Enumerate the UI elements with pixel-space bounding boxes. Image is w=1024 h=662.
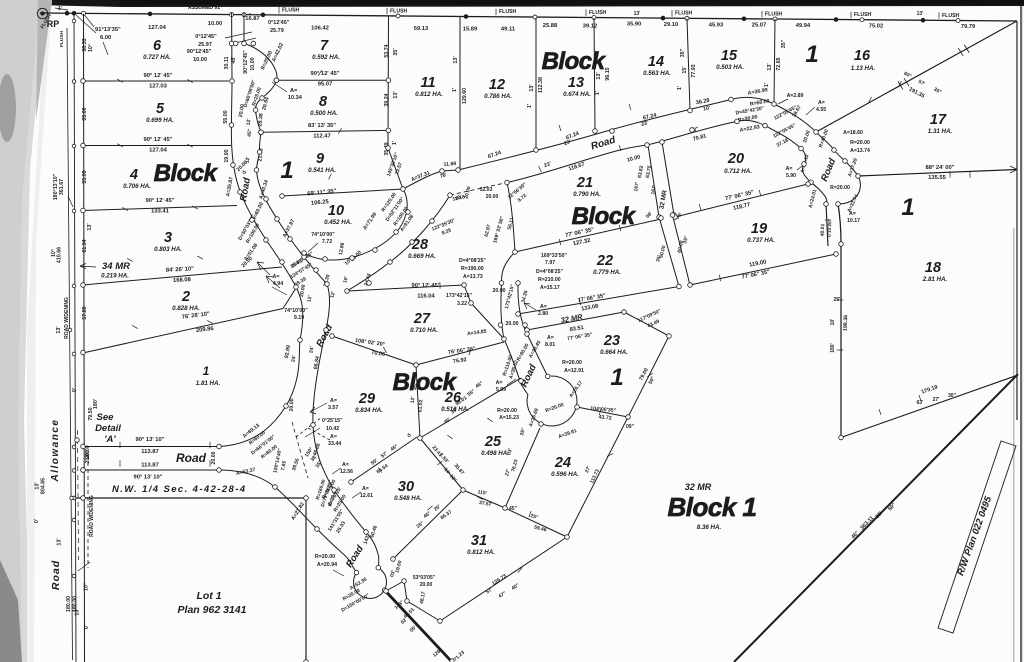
svg-text:24': 24': [290, 355, 297, 363]
svg-text:45": 45": [413, 381, 420, 390]
svg-text:A=15.23: A=15.23: [499, 415, 519, 421]
svg-text:10': 10': [830, 319, 836, 326]
svg-text:10.00: 10.00: [193, 57, 207, 63]
svg-text:77.93: 77.93: [691, 64, 697, 77]
svg-text:R=20.00: R=20.00: [830, 185, 850, 191]
svg-text:20.00: 20.00: [506, 321, 519, 327]
svg-text:72.65: 72.65: [776, 57, 782, 70]
svg-text:R=20.00: R=20.00: [315, 554, 335, 560]
svg-text:1.81 HA.: 1.81 HA.: [196, 380, 221, 387]
svg-text:A=15.17: A=15.17: [540, 285, 560, 291]
svg-text:90°12'45": 90°12'45": [187, 49, 212, 55]
svg-text:96.15: 96.15: [605, 67, 611, 80]
svg-text:15.89: 15.89: [463, 26, 478, 32]
svg-text:127.03: 127.03: [149, 84, 168, 90]
svg-text:A=20.94: A=20.94: [317, 562, 337, 568]
svg-text:3.22: 3.22: [457, 301, 467, 307]
svg-text:168.08: 168.08: [173, 277, 192, 284]
svg-text:0°25'15": 0°25'15": [322, 418, 343, 424]
svg-text:33.44: 33.44: [328, 441, 341, 447]
svg-text:9.19: 9.19: [294, 315, 304, 321]
svg-text:0.452 HA.: 0.452 HA.: [324, 219, 352, 226]
svg-text:20.00: 20.00: [211, 451, 217, 464]
svg-text:A=: A=: [496, 380, 503, 386]
svg-text:16: 16: [854, 48, 871, 64]
svg-text:Road: Road: [50, 560, 62, 590]
svg-text:Allowance: Allowance: [50, 419, 61, 483]
svg-text:0.699 HA.: 0.699 HA.: [146, 117, 174, 124]
svg-text:180': 180': [93, 399, 99, 409]
svg-text:Detail: Detail: [95, 423, 121, 434]
svg-text:Block 1: Block 1: [668, 492, 757, 522]
svg-text:A=13.74: A=13.74: [850, 148, 870, 154]
svg-text:20.00: 20.00: [486, 194, 499, 200]
svg-text:6.00: 6.00: [100, 35, 111, 41]
svg-text:2.81 HA.: 2.81 HA.: [922, 276, 948, 283]
svg-text:43.72: 43.72: [598, 414, 612, 421]
svg-text:FLUSH: FLUSH: [675, 11, 693, 17]
svg-text:0': 0': [72, 388, 78, 392]
svg-text:19: 19: [751, 221, 767, 237]
svg-text:10: 10: [328, 203, 344, 219]
svg-text:16.87: 16.87: [245, 16, 260, 22]
svg-text:ROAD WIDENING: ROAD WIDENING: [89, 495, 95, 537]
svg-text:R=20.00: R=20.00: [497, 408, 517, 414]
svg-text:FLUSH: FLUSH: [854, 12, 872, 18]
svg-text:40.01: 40.01: [820, 223, 826, 236]
svg-text:8: 8: [319, 94, 328, 110]
svg-text:5.90: 5.90: [786, 173, 796, 179]
svg-text:10°: 10°: [84, 583, 90, 591]
svg-text:R=190.00: R=190.00: [461, 266, 484, 272]
svg-text:49.11: 49.11: [501, 27, 516, 33]
svg-text:ASSUMED 91°: ASSUMED 91°: [188, 5, 222, 11]
svg-text:D=4°08'25": D=4°08'25": [536, 269, 564, 275]
svg-text:1.31 HA.: 1.31 HA.: [928, 128, 953, 135]
svg-text:FLUSH: FLUSH: [765, 11, 783, 17]
svg-text:198.36: 198.36: [843, 315, 850, 331]
svg-text:28: 28: [411, 237, 429, 253]
svg-text:95.07: 95.07: [318, 82, 333, 88]
svg-text:9: 9: [316, 151, 324, 167]
svg-text:FLUSH: FLUSH: [282, 7, 300, 13]
svg-text:R=20.00: R=20.00: [562, 360, 582, 366]
svg-text:0.710 HA.: 0.710 HA.: [410, 327, 438, 334]
svg-text:10.34: 10.34: [288, 95, 303, 101]
svg-text:A=: A=: [540, 304, 547, 310]
svg-text:0': 0': [407, 433, 413, 437]
svg-text:135.55: 135.55: [928, 175, 947, 181]
svg-text:13: 13: [568, 75, 584, 91]
svg-text:7.97: 7.97: [545, 260, 555, 266]
svg-text:10.00: 10.00: [208, 21, 223, 27]
svg-text:39.12: 39.12: [583, 23, 598, 29]
svg-text:31: 31: [471, 533, 487, 549]
svg-text:1: 1: [203, 364, 210, 378]
svg-text:Road: Road: [176, 451, 207, 465]
svg-text:Plan 962 3141: Plan 962 3141: [178, 604, 247, 616]
svg-text:0': 0': [34, 519, 40, 523]
svg-text:8.36 HA.: 8.36 HA.: [697, 524, 722, 531]
svg-text:18: 18: [925, 260, 942, 276]
svg-text:13': 13': [393, 91, 399, 98]
svg-text:113.87: 113.87: [141, 449, 158, 455]
svg-text:A=12.91: A=12.91: [564, 368, 584, 374]
svg-text:35": 35": [680, 48, 686, 57]
svg-text:10°: 10°: [88, 44, 94, 52]
svg-text:24': 24': [308, 346, 315, 354]
svg-text:1': 1': [452, 88, 458, 92]
svg-text:3: 3: [164, 230, 172, 246]
svg-text:30: 30: [398, 479, 414, 495]
svg-text:804.65: 804.65: [41, 478, 47, 494]
svg-text:0.219 HA.: 0.219 HA.: [101, 273, 129, 280]
svg-text:0.779 HA.: 0.779 HA.: [593, 269, 621, 276]
svg-text:0.503 HA.: 0.503 HA.: [716, 64, 744, 71]
svg-text:FLUSH: FLUSH: [942, 13, 960, 19]
svg-text:180': 180': [830, 343, 836, 353]
svg-text:0.500 HA.: 0.500 HA.: [310, 110, 338, 117]
svg-text:79.79: 79.79: [961, 24, 976, 30]
svg-text:0'10'25": 0'10'25": [827, 219, 834, 237]
svg-text:0.669 HA.: 0.669 HA.: [408, 253, 436, 260]
svg-text:13': 13': [917, 11, 924, 17]
svg-text:10.42: 10.42: [326, 426, 339, 432]
svg-text:A=: A=: [362, 486, 369, 492]
svg-text:15: 15: [721, 48, 738, 64]
svg-text:1: 1: [610, 364, 623, 391]
svg-text:A=: A=: [342, 462, 349, 468]
svg-text:0': 0': [242, 170, 248, 174]
svg-text:91°13'35": 91°13'35": [95, 27, 121, 33]
svg-text:R=20.00: R=20.00: [850, 140, 870, 146]
svg-text:1': 1': [527, 104, 533, 108]
svg-text:24: 24: [554, 455, 571, 471]
svg-text:39.24: 39.24: [384, 93, 390, 106]
svg-text:90° 12' 45": 90° 12' 45": [411, 283, 440, 289]
svg-text:20.00: 20.00: [493, 288, 506, 294]
svg-text:N.W. 1/4 Sec. 4-42-28-4: N.W. 1/4 Sec. 4-42-28-4: [112, 484, 246, 495]
svg-text:7: 7: [320, 38, 329, 54]
svg-text:35.90: 35.90: [627, 22, 642, 28]
svg-text:11: 11: [420, 75, 435, 91]
svg-text:0.803 HA.: 0.803 HA.: [154, 246, 182, 253]
svg-text:1: 1: [280, 157, 293, 184]
svg-text:0°12'45": 0°12'45": [195, 34, 217, 40]
svg-text:20.00: 20.00: [289, 398, 295, 411]
svg-text:25.88: 25.88: [543, 23, 558, 29]
svg-text:53°03'05": 53°03'05": [413, 575, 436, 581]
svg-text:13': 13': [57, 538, 63, 545]
svg-text:FLUSH: FLUSH: [499, 9, 517, 15]
svg-text:0.706 HA.: 0.706 HA.: [123, 183, 151, 190]
svg-text:15': 15': [682, 66, 688, 73]
svg-text:0.592 HA.: 0.592 HA.: [312, 54, 340, 61]
svg-text:ROAD WIDENING: ROAD WIDENING: [64, 297, 70, 339]
svg-text:21: 21: [576, 175, 593, 191]
svg-text:0.790 HA.: 0.790 HA.: [573, 191, 601, 198]
svg-text:0': 0': [84, 625, 90, 629]
svg-text:1: 1: [901, 194, 914, 221]
svg-text:0.674 HA.: 0.674 HA.: [563, 91, 591, 98]
svg-text:13': 13': [634, 11, 641, 17]
svg-text:32.03: 32.03: [480, 187, 493, 193]
svg-text:D=4°08'25": D=4°08'25": [459, 258, 487, 264]
svg-text:361.67: 361.67: [59, 179, 65, 195]
svg-text:90° 12' 45": 90° 12' 45": [310, 71, 339, 77]
svg-text:A=: A=: [290, 88, 297, 94]
svg-text:59.13: 59.13: [414, 26, 429, 32]
svg-text:13': 13': [453, 56, 459, 63]
svg-text:25.97: 25.97: [198, 42, 212, 48]
svg-text:116.04: 116.04: [417, 294, 435, 300]
svg-text:Lot 1: Lot 1: [196, 590, 221, 602]
svg-text:1': 1': [595, 91, 601, 95]
svg-text:Block: Block: [154, 160, 219, 187]
svg-text:90° 13' 10": 90° 13' 10": [135, 437, 164, 443]
svg-text:180.00: 180.00: [66, 596, 72, 612]
svg-text:12': 12': [306, 295, 313, 303]
svg-text:25.79: 25.79: [270, 28, 284, 34]
svg-text:34 MR: 34 MR: [102, 261, 130, 272]
svg-text:0.596 HA.: 0.596 HA.: [551, 471, 579, 478]
svg-text:6: 6: [153, 38, 162, 54]
svg-text:45": 45": [247, 128, 254, 137]
svg-text:57.80: 57.80: [82, 306, 88, 319]
svg-text:169°33'50": 169°33'50": [541, 253, 568, 259]
svg-text:28.38: 28.38: [257, 113, 264, 127]
svg-text:0.712 HA.: 0.712 HA.: [724, 168, 752, 175]
svg-text:2.80: 2.80: [538, 311, 548, 317]
svg-text:0.498 HA.: 0.498 HA.: [481, 450, 509, 457]
svg-text:0.664 HA.: 0.664 HA.: [600, 349, 628, 356]
svg-text:90° 12' 45": 90° 12' 45": [143, 73, 172, 79]
svg-text:63': 63': [917, 400, 924, 406]
svg-text:A=: A=: [547, 335, 554, 341]
svg-text:61.02: 61.02: [417, 399, 424, 412]
svg-text:2: 2: [181, 289, 190, 305]
svg-text:10.00: 10.00: [250, 57, 256, 70]
svg-text:12.56: 12.56: [340, 469, 353, 475]
svg-text:17: 17: [930, 112, 947, 128]
svg-text:Block: Block: [572, 203, 637, 230]
svg-text:74°10'00": 74°10'00": [311, 232, 335, 238]
svg-text:29.10: 29.10: [664, 22, 679, 28]
svg-text:R=210.00: R=210.00: [538, 277, 561, 283]
svg-text:55.00: 55.00: [82, 170, 88, 183]
svg-text:30": 30": [948, 393, 957, 399]
svg-text:3.57: 3.57: [328, 405, 338, 411]
svg-text:133.41: 133.41: [151, 209, 170, 215]
svg-text:127.04: 127.04: [149, 148, 168, 154]
svg-text:1': 1': [392, 141, 398, 145]
svg-text:90°12'45": 90°12'45": [243, 50, 249, 74]
svg-text:45': 45': [231, 56, 237, 63]
svg-text:A=: A=: [849, 211, 856, 217]
svg-text:12': 12': [410, 396, 417, 403]
svg-text:13': 13': [529, 84, 535, 91]
svg-text:22: 22: [596, 253, 613, 269]
svg-text:13': 13': [87, 223, 93, 230]
svg-text:Block: Block: [542, 48, 607, 75]
svg-text:0°12'45": 0°12'45": [268, 20, 290, 26]
svg-text:12': 12': [246, 118, 253, 125]
svg-text:0.786 HA.: 0.786 HA.: [484, 93, 512, 100]
svg-text:FLUSH: FLUSH: [589, 10, 607, 16]
svg-text:14: 14: [648, 54, 664, 70]
svg-text:55.00: 55.00: [82, 107, 88, 120]
svg-text:30.11: 30.11: [224, 56, 230, 69]
svg-text:13': 13': [56, 326, 62, 333]
svg-text:12.61: 12.61: [360, 493, 373, 499]
svg-text:61.94: 61.94: [82, 239, 88, 252]
svg-text:75.02: 75.02: [869, 24, 884, 30]
svg-text:112.47: 112.47: [313, 134, 330, 140]
svg-text:7.72: 7.72: [322, 239, 332, 245]
svg-text:A=: A=: [273, 274, 280, 280]
svg-text:20: 20: [727, 151, 744, 167]
svg-text:4: 4: [129, 167, 138, 183]
svg-text:106.42: 106.42: [311, 26, 329, 32]
svg-text:29: 29: [358, 391, 375, 407]
svg-text:A=: A=: [330, 434, 337, 440]
svg-text:0.812 HA.: 0.812 HA.: [467, 549, 495, 556]
svg-text:27: 27: [413, 311, 431, 327]
svg-text:88° 24' 00": 88° 24' 00": [925, 165, 954, 171]
svg-text:127.04: 127.04: [148, 25, 167, 31]
svg-text:20.00: 20.00: [420, 582, 433, 588]
svg-text:45": 45": [509, 506, 518, 512]
svg-text:55.00: 55.00: [223, 110, 229, 123]
svg-text:A=2.89: A=2.89: [787, 93, 804, 99]
svg-text:112.38: 112.38: [538, 77, 544, 93]
svg-text:32 MR: 32 MR: [685, 482, 712, 492]
svg-text:A=13.73: A=13.73: [463, 274, 483, 280]
svg-text:8.01: 8.01: [545, 342, 555, 348]
svg-text:13': 13': [75, 608, 81, 615]
svg-text:See: See: [97, 412, 115, 423]
svg-text:5.99: 5.99: [496, 387, 506, 393]
svg-text:'A': 'A': [104, 434, 116, 445]
svg-text:FLUSH: FLUSH: [59, 30, 65, 47]
svg-text:FLUSH: FLUSH: [390, 8, 408, 14]
svg-text:10.17: 10.17: [847, 218, 860, 224]
svg-text:09": 09": [626, 424, 635, 430]
svg-text:1: 1: [805, 41, 818, 68]
svg-text:35": 35": [781, 39, 787, 48]
svg-text:90° 12' 45": 90° 12' 45": [143, 137, 172, 143]
svg-text:90° 12' 45": 90° 12' 45": [145, 198, 174, 204]
svg-text:83' 13' 35": 83' 13' 35": [308, 123, 336, 129]
svg-text:25.07: 25.07: [752, 23, 767, 29]
svg-text:0.541 HA.: 0.541 HA.: [308, 167, 336, 174]
svg-text:1': 1': [677, 86, 683, 90]
svg-text:53.74: 53.74: [384, 44, 390, 57]
svg-text:113.87: 113.87: [141, 463, 158, 469]
svg-text:90° 13' 10": 90° 13' 10": [133, 475, 162, 481]
svg-text:27': 27': [933, 397, 940, 403]
svg-text:4.55: 4.55: [816, 107, 826, 113]
svg-text:25: 25: [484, 434, 502, 450]
svg-text:129.60: 129.60: [462, 88, 468, 104]
svg-text:35': 35': [393, 48, 399, 55]
svg-text:13': 13': [767, 63, 773, 70]
svg-text:173°42'15": 173°42'15": [446, 293, 473, 299]
svg-text:1.13 HA.: 1.13 HA.: [851, 65, 876, 72]
svg-text:19.90: 19.90: [224, 149, 230, 162]
svg-text:A=: A=: [786, 166, 793, 172]
svg-text:12: 12: [489, 77, 505, 93]
svg-text:11.69: 11.69: [443, 161, 456, 168]
svg-text:5: 5: [156, 101, 165, 117]
svg-text:49.94: 49.94: [796, 23, 811, 29]
svg-text:0.548 HA.: 0.548 HA.: [394, 495, 422, 502]
svg-text:45.93: 45.93: [709, 22, 724, 28]
svg-text:A=18.60: A=18.60: [843, 130, 863, 136]
svg-text:0.834 HA.: 0.834 HA.: [355, 407, 383, 414]
svg-text:0.563 HA.: 0.563 HA.: [643, 70, 671, 77]
svg-text:410.66: 410.66: [57, 247, 63, 263]
svg-text:0.828 HA.: 0.828 HA.: [172, 305, 200, 312]
svg-text:0.737 HA.: 0.737 HA.: [747, 237, 775, 244]
svg-text:74°10'00": 74°10'00": [284, 308, 308, 314]
svg-text:23: 23: [603, 333, 620, 349]
svg-text:A=: A=: [330, 398, 337, 404]
svg-text:0.727 HA.: 0.727 HA.: [143, 54, 171, 61]
svg-text:0.812 HA.: 0.812 HA.: [415, 91, 443, 98]
svg-text:20.00: 20.00: [85, 450, 91, 463]
svg-text:A=: A=: [818, 100, 825, 106]
